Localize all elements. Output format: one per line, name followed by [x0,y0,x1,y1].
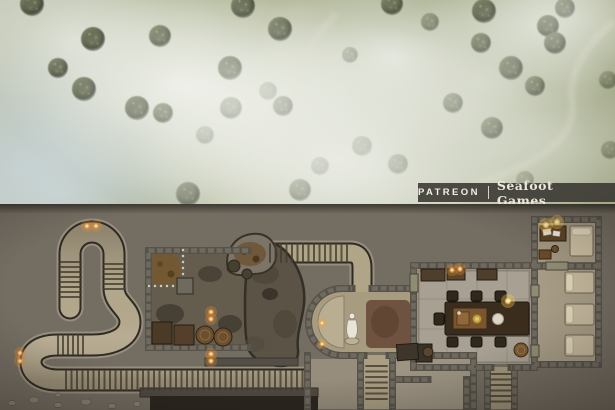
bush-icon [471,33,491,53]
bush-icon [352,136,372,156]
bush-icon [601,141,615,159]
bush-icon [72,77,96,101]
patreon-label: PATREON [418,187,480,198]
battle-map-screenshot: PATREON Seafoot Games [0,0,615,410]
shrub-layer [0,0,615,204]
map-top-shadow [0,204,615,214]
meadow-overview: PATREON Seafoot Games [0,0,615,204]
dungeon-map-svg [0,204,615,410]
bush-icon [342,47,358,63]
bush-icon [268,17,292,41]
bush-icon [289,179,311,201]
map-vignette [0,204,615,410]
bush-icon [259,82,277,100]
bush-icon [388,154,408,174]
bush-icon [81,27,105,51]
bush-icon [48,58,68,78]
bush-icon [525,76,545,96]
bush-icon [176,182,200,204]
bush-icon [443,93,463,113]
bush-icon [544,32,566,54]
bush-icon [555,0,575,18]
bush-icon [599,71,615,89]
bush-icon [421,13,439,31]
bush-icon [153,103,173,123]
bush-icon [220,97,242,119]
dungeon-map [0,204,615,410]
brand-label: Seafoot Games [497,178,605,205]
bush-icon [499,56,523,80]
bush-icon [218,56,242,80]
bush-icon [472,0,496,23]
patreon-watermark: PATREON Seafoot Games [418,183,615,202]
bush-icon [125,96,149,120]
watermark-divider [488,186,489,199]
bush-icon [231,0,255,18]
bush-icon [273,96,293,116]
bush-icon [149,25,171,47]
bush-icon [196,126,214,144]
bush-icon [20,0,44,16]
bush-icon [381,0,403,15]
bush-icon [481,117,503,139]
bush-icon [311,157,329,175]
